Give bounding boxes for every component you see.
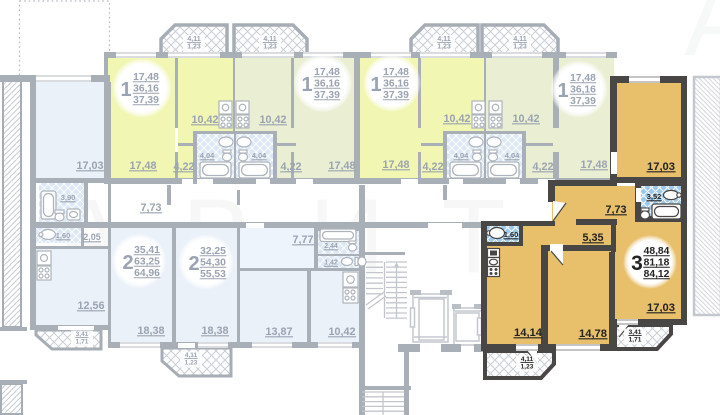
svg-text:12,56: 12,56: [77, 300, 104, 312]
svg-text:4,04: 4,04: [505, 151, 520, 160]
svg-text:1,71: 1,71: [629, 337, 642, 344]
svg-text:7,77: 7,77: [292, 234, 313, 246]
svg-text:3,52: 3,52: [647, 192, 662, 201]
svg-text:17,03: 17,03: [76, 160, 103, 172]
svg-text:3,90: 3,90: [61, 193, 76, 202]
svg-text:2: 2: [122, 252, 133, 274]
svg-text:7,73: 7,73: [140, 202, 161, 214]
svg-text:1,23: 1,23: [185, 360, 198, 367]
svg-text:3: 3: [631, 252, 643, 275]
svg-text:4,22: 4,22: [422, 161, 443, 173]
svg-text:10,42: 10,42: [259, 114, 286, 126]
svg-text:1,23: 1,23: [521, 364, 534, 371]
svg-text:5,35: 5,35: [582, 232, 603, 244]
svg-text:17,03: 17,03: [647, 161, 675, 173]
svg-text:7,73: 7,73: [605, 204, 626, 216]
svg-text:1,60: 1,60: [504, 230, 519, 239]
svg-text:4,04: 4,04: [200, 151, 215, 160]
svg-text:1,23: 1,23: [513, 44, 527, 51]
svg-text:2: 2: [188, 253, 199, 275]
svg-text:4,22: 4,22: [532, 161, 553, 173]
svg-text:1: 1: [301, 74, 312, 96]
svg-text:1: 1: [120, 79, 131, 101]
svg-text:14,78: 14,78: [579, 328, 607, 340]
svg-text:1,23: 1,23: [437, 44, 451, 51]
svg-text:13,87: 13,87: [265, 326, 292, 338]
svg-text:4,04: 4,04: [454, 151, 469, 160]
svg-text:2,05: 2,05: [83, 232, 101, 242]
svg-text:1,23: 1,23: [263, 44, 277, 51]
svg-text:1,60: 1,60: [56, 231, 71, 240]
svg-text:17,48: 17,48: [328, 160, 355, 172]
svg-text:17,48: 17,48: [580, 159, 607, 171]
svg-text:1: 1: [370, 74, 381, 96]
svg-text:10,42: 10,42: [191, 114, 218, 126]
svg-text:10,42: 10,42: [512, 113, 539, 125]
svg-text:17,48: 17,48: [129, 160, 156, 172]
svg-text:1,23: 1,23: [187, 44, 201, 51]
svg-text:17,48: 17,48: [382, 159, 409, 171]
svg-text:10,42: 10,42: [443, 113, 470, 125]
svg-text:4,22: 4,22: [280, 161, 301, 173]
svg-text:4,22: 4,22: [173, 161, 194, 173]
svg-text:2,44: 2,44: [324, 243, 338, 250]
svg-text:18,38: 18,38: [201, 325, 228, 337]
svg-text:А: А: [684, 0, 720, 78]
svg-text:1,42: 1,42: [324, 260, 338, 267]
svg-text:1,71: 1,71: [76, 339, 89, 346]
svg-text:18,38: 18,38: [137, 325, 164, 337]
svg-text:10,42: 10,42: [328, 326, 355, 338]
svg-text:1: 1: [557, 80, 568, 102]
svg-text:4,04: 4,04: [252, 151, 267, 160]
svg-text:17,03: 17,03: [647, 302, 675, 314]
svg-text:14,14: 14,14: [514, 327, 543, 339]
